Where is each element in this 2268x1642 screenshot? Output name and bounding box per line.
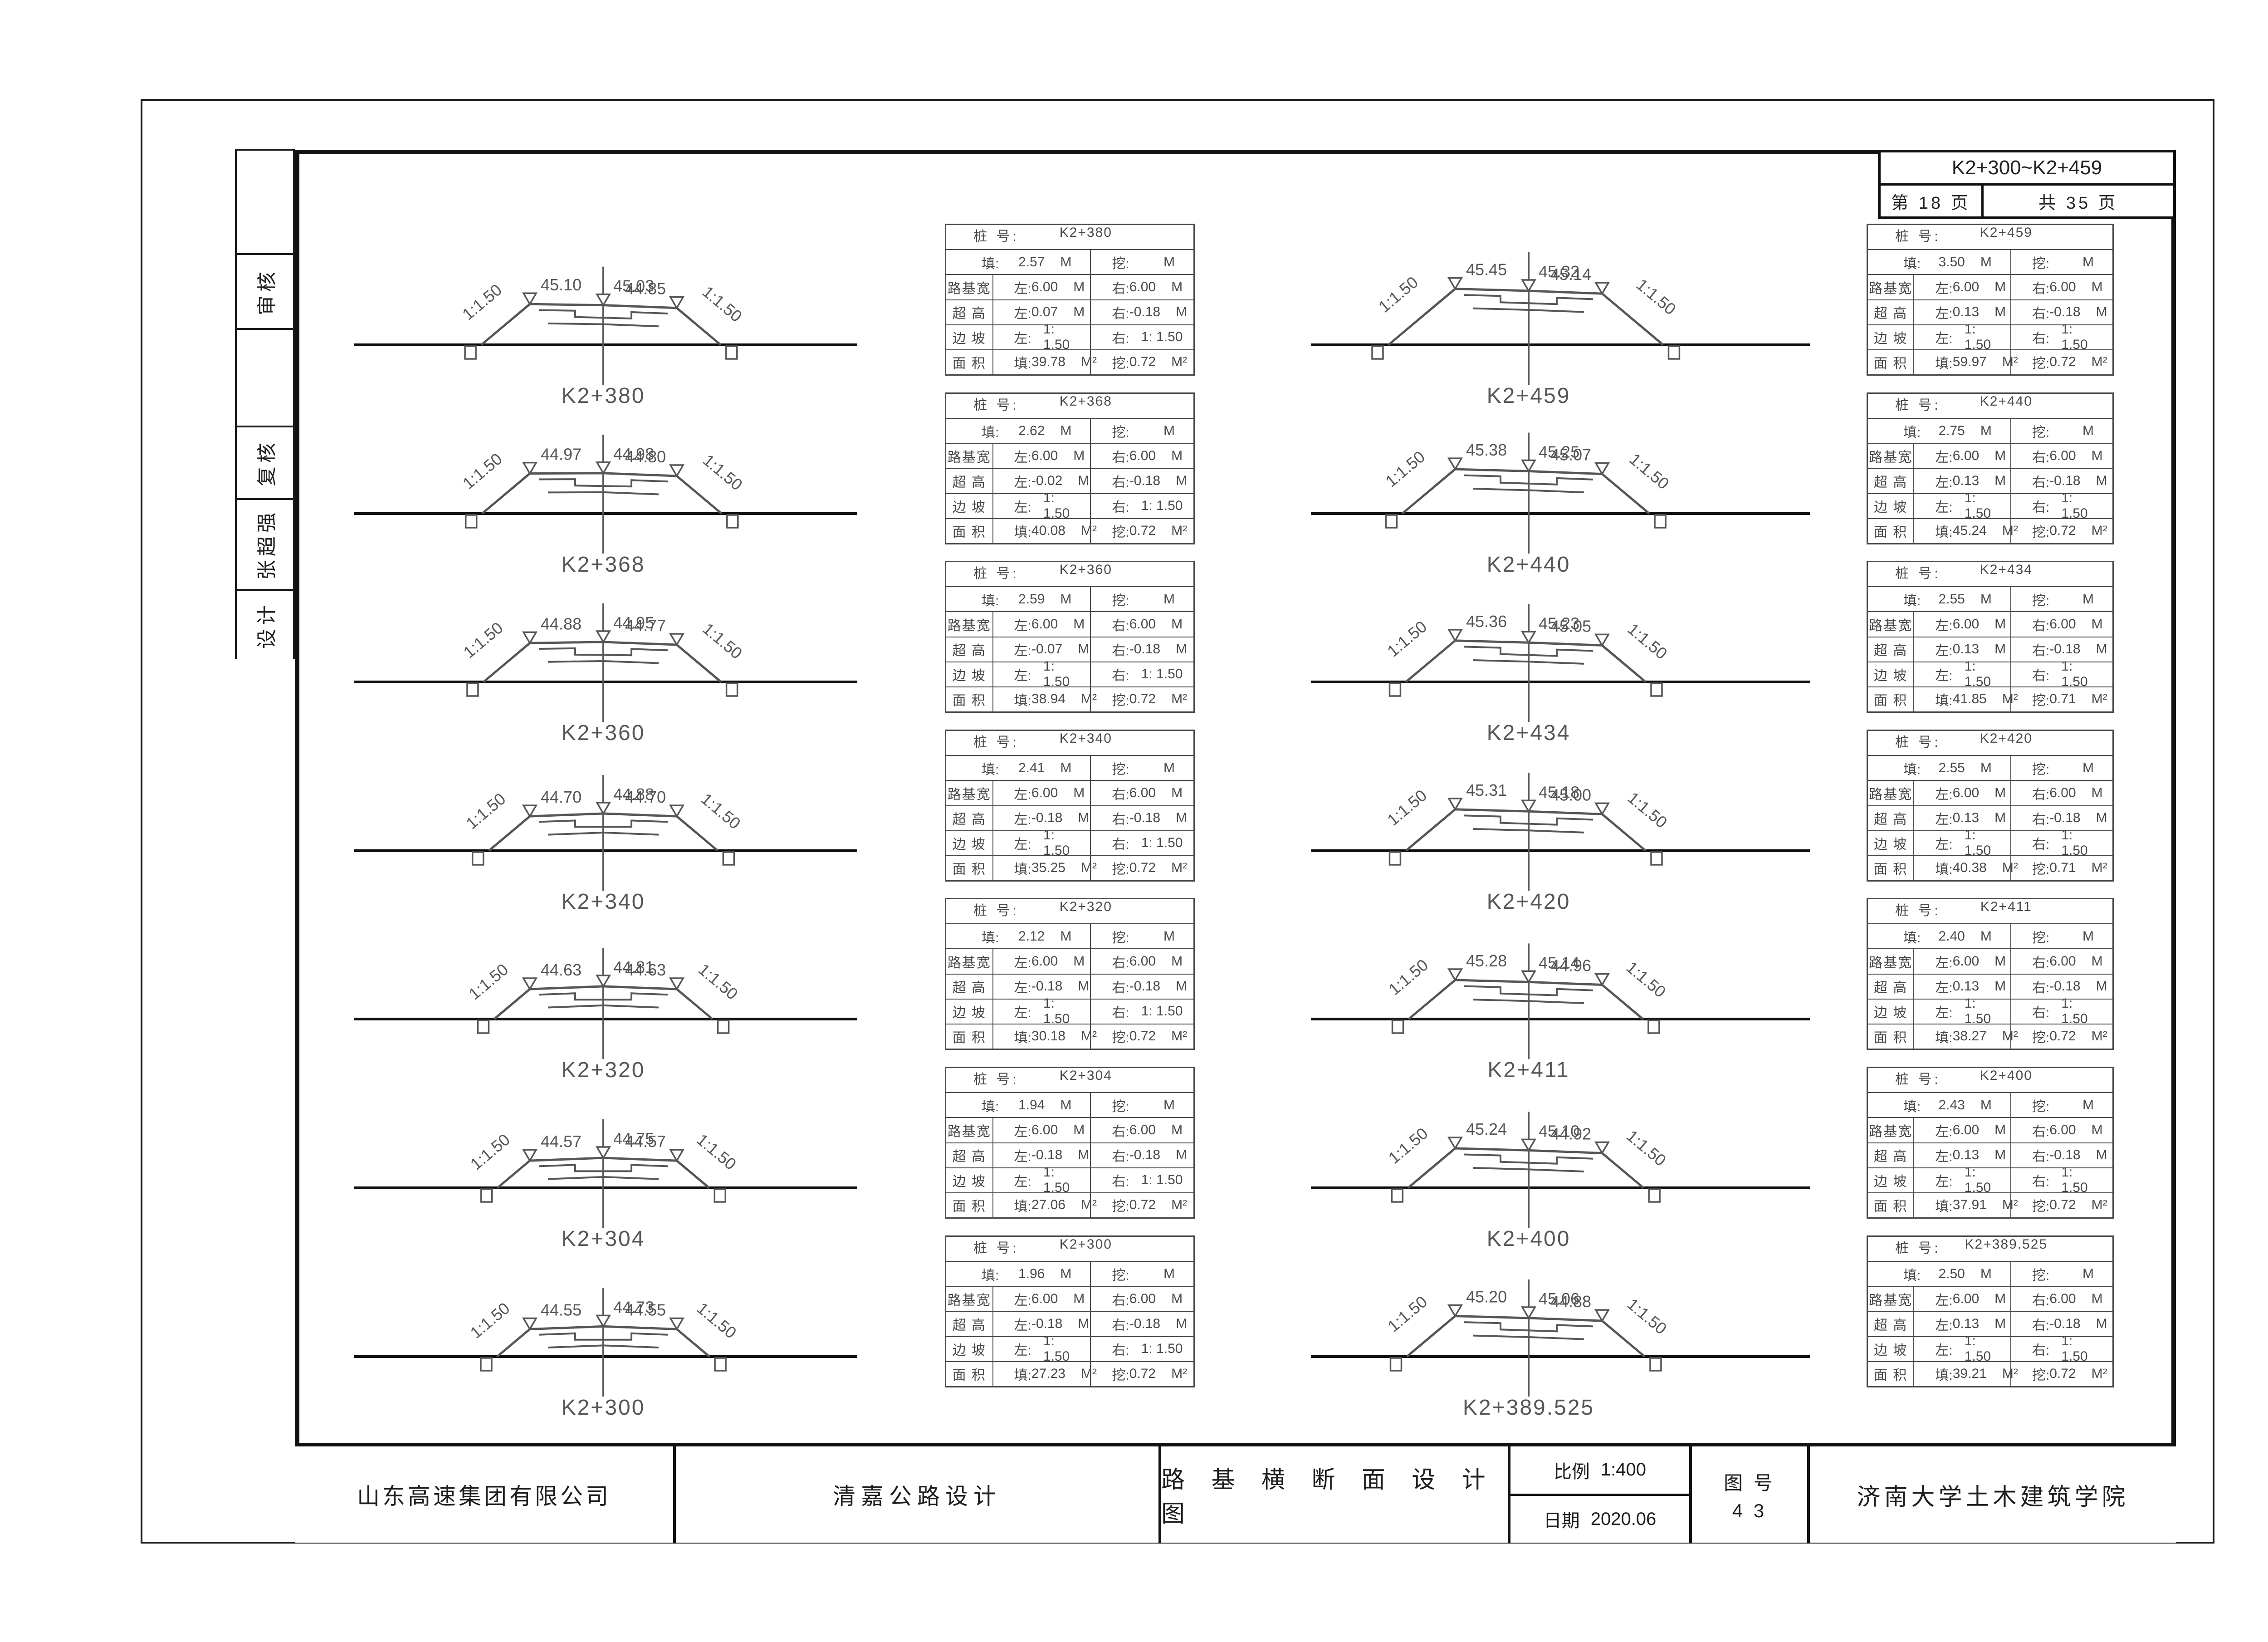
fill-label: 填:: [1903, 252, 1921, 272]
left-toe-marker-icon: [1392, 1189, 1403, 1202]
right-slope-ratio-label: 1:1.50: [1623, 1126, 1670, 1170]
left-label: 左:: [1935, 1170, 1952, 1190]
row-superelevation-right-value: -0.18: [1129, 473, 1160, 489]
left-label: 填:: [1935, 1364, 1952, 1384]
row-roadbed-width-right-value: 6.00: [2049, 279, 2076, 295]
right-label: 右:: [1112, 446, 1129, 466]
row-roadbed-width-left-cell: 左:6.00M: [993, 1287, 1091, 1311]
row-area: 面 积填:39.21M²挖:0.72M²: [1868, 1361, 2112, 1386]
right-label: 挖:: [2032, 1195, 2049, 1215]
row-superelevation-right-value: -0.18: [2049, 1316, 2080, 1332]
station-value: K2+440: [1941, 394, 2072, 418]
row-superelevation-header: 超 高: [946, 300, 993, 324]
row-side-slope: 边 坡左:1: 1.50右:1: 1.50: [946, 662, 1193, 686]
elevation-marker-icon: [1522, 280, 1535, 291]
row-superelevation-right-value: -0.18: [2049, 473, 2080, 489]
left-label: 左:: [1935, 496, 1952, 516]
row-superelevation-left-value: 0.13: [1953, 979, 1979, 994]
cut-height-cell: 挖:M: [2011, 1093, 2112, 1117]
elevation-marker-icon: [1522, 1139, 1535, 1150]
unit: M: [1171, 954, 1191, 969]
unit: M: [1176, 979, 1196, 994]
left-slope-line: [1406, 809, 1455, 851]
right-label: 右:: [1112, 1339, 1129, 1359]
left-label: 填:: [1014, 1364, 1031, 1384]
left-label: 左:: [1935, 639, 1952, 659]
row-superelevation-header: 超 高: [946, 469, 993, 493]
station-value: K2+420: [1941, 731, 2072, 755]
row-superelevation-right-cell: 右:-0.18M: [1091, 806, 1193, 830]
row-side-slope-header-label: 边 坡: [953, 327, 986, 347]
elevation-marker-icon: [1596, 634, 1608, 645]
left-label: 左:: [1935, 833, 1952, 853]
row-superelevation-left-cell: 左:0.13M: [1914, 300, 2011, 324]
cut-height-cell: 挖:M: [1091, 419, 1193, 443]
left-label: 左:: [1935, 1120, 1952, 1140]
right-label: 右:: [1112, 639, 1129, 659]
row-roadbed-width-right-value: 6.00: [1129, 1122, 1156, 1138]
row-side-slope-left-cell: 左:1: 1.50: [1914, 494, 2011, 518]
row-roadbed-width-header-label: 路基宽: [1869, 951, 1912, 971]
station-caption: K2+300: [562, 1396, 645, 1420]
right-label: 右:: [2032, 1314, 2049, 1334]
row-roadbed-width-header: 路基宽: [1868, 1118, 1914, 1142]
row-roadbed-width: 路基宽左:6.00M右:6.00M: [946, 611, 1193, 636]
left-label: 左:: [1935, 1339, 1952, 1359]
margin-label-sheji: 设计: [250, 602, 279, 649]
unit: M: [1073, 448, 1093, 464]
cross-section-table-K2+389.525: 桩 号:K2+389.525填:2.50M挖:M路基宽左:6.00M右:6.00…: [1867, 1235, 2114, 1387]
row-roadbed-width-left-cell: 左:6.00M: [1914, 612, 2011, 636]
right-label: 挖:: [1112, 1364, 1129, 1384]
right-toe-marker-icon: [1651, 852, 1662, 865]
right-label: 右:: [2032, 1339, 2049, 1359]
station-value: K2+389.525: [1941, 1237, 2072, 1261]
row-area-right-cell: 挖:0.72M²: [1091, 1024, 1193, 1049]
unit: M²: [1171, 354, 1191, 370]
row-superelevation: 超 高左:-0.18M右:-0.18M: [946, 974, 1193, 999]
row-station: 桩 号:K2+420: [1868, 731, 2112, 755]
row-roadbed-width-left-value: 6.00: [1031, 448, 1058, 464]
row-roadbed-width-left-cell: 左:6.00M: [993, 1118, 1091, 1142]
row-side-slope-left-cell: 左:1: 1.50: [1914, 1168, 2011, 1192]
row-superelevation: 超 高左:0.13M右:-0.18M: [1868, 299, 2112, 324]
row-area-right-value: 0.72: [2049, 1029, 2076, 1044]
row-superelevation-left-value: 0.13: [1953, 304, 1979, 320]
elevation-left: 44.63: [541, 961, 582, 979]
row-area-left-cell: 填:39.21M²: [1914, 1362, 2011, 1386]
right-toe-marker-icon: [723, 852, 734, 865]
row-area-header-label: 面 积: [1874, 689, 1907, 709]
cut-label: 挖:: [2032, 758, 2049, 778]
station-label: 桩 号:: [1895, 562, 1941, 586]
station-caption: K2+389.525: [1463, 1396, 1594, 1420]
row-area-right-cell: 挖:0.72M²: [1091, 350, 1193, 374]
elevation-marker-icon: [1449, 799, 1461, 809]
right-label: 右:: [1112, 951, 1129, 971]
row-area-right-cell: 挖:0.72M²: [1091, 519, 1193, 543]
right-slope-line: [1602, 645, 1646, 682]
fill-height-value: 1.96: [1018, 1266, 1045, 1282]
cut-height-cell: 挖:M: [2011, 587, 2112, 611]
row-roadbed-width-right-value: 6.00: [1129, 617, 1156, 632]
row-superelevation-header-label: 超 高: [1874, 471, 1907, 491]
row-fill-cut: 填:2.12M挖:M: [946, 923, 1193, 948]
left-label: 左:: [1014, 302, 1031, 322]
left-slope-line: [489, 816, 530, 851]
row-roadbed-width-left-cell: 左:6.00M: [993, 275, 1091, 299]
right-label: 右:: [2032, 614, 2049, 634]
elevation-marker-icon: [1596, 1310, 1608, 1321]
cut-height-cell: 挖:M: [2011, 756, 2112, 780]
row-roadbed-width-header: 路基宽: [1868, 275, 1914, 299]
right-label: 右:: [1112, 302, 1129, 322]
right-label: 右:: [2032, 277, 2049, 297]
unit: M: [1176, 642, 1196, 657]
unit: M²: [2092, 691, 2112, 707]
row-side-slope-left-value: 1: 1.50: [1043, 490, 1080, 521]
left-label: 左:: [1014, 951, 1031, 971]
left-label: 左:: [1935, 614, 1952, 634]
row-superelevation-left-value: -0.07: [1031, 642, 1062, 657]
right-label: 右:: [2032, 808, 2049, 828]
row-area-header-label: 面 积: [1874, 1364, 1907, 1384]
row-side-slope-left-value: 1: 1.50: [1043, 996, 1080, 1027]
row-side-slope-left-cell: 左:1: 1.50: [1914, 1337, 2011, 1361]
unit-m: M: [1060, 760, 1080, 776]
row-area: 面 积填:40.38M²挖:0.71M²: [1868, 855, 2112, 880]
left-label: 左:: [1014, 664, 1031, 684]
right-label: 右:: [2032, 951, 2049, 971]
elevation-right: 44.77: [625, 616, 666, 635]
left-slope-line: [497, 1329, 530, 1357]
row-side-slope-right-value: 1: 1.50: [1141, 498, 1183, 514]
row-side-slope-right-value: 1: 1.50: [2061, 322, 2102, 353]
unit: M: [1171, 448, 1191, 464]
row-superelevation-header: 超 高: [946, 975, 993, 999]
cross-section-diagram-K2+300: 44.5544.7344.551:1.501:1.50K2+300: [340, 1207, 866, 1425]
row-side-slope-right-cell: 右:1: 1.50: [2011, 831, 2112, 855]
row-superelevation-header-label: 超 高: [953, 808, 986, 828]
elevation-marker-icon: [1449, 278, 1461, 289]
right-label: 右:: [2032, 446, 2049, 466]
right-label: 右:: [1112, 976, 1129, 996]
row-area-left-value: 39.21: [1953, 1366, 1987, 1382]
row-area-header: 面 积: [946, 687, 993, 711]
row-area: 面 积填:38.94M²挖:0.72M²: [946, 686, 1193, 711]
row-fill-cut: 填:3.50M挖:M: [1868, 249, 2112, 274]
page-number: 第 18 页: [1881, 186, 1984, 216]
row-side-slope-right-cell: 右:1: 1.50: [2011, 1000, 2112, 1024]
left-label: 填:: [1935, 858, 1952, 878]
row-superelevation-left-value: -0.18: [1031, 1147, 1062, 1163]
right-label: 右:: [1112, 277, 1129, 297]
right-slope-line: [677, 308, 721, 345]
row-side-slope-header: 边 坡: [1868, 325, 1914, 349]
fill-height-cell: 填:2.62M: [946, 419, 1091, 443]
row-superelevation-right-value: -0.18: [1129, 304, 1160, 320]
elevation-left: 45.45: [1466, 260, 1507, 279]
row-area-header: 面 积: [1868, 519, 1914, 543]
row-area-right-value: 0.71: [2049, 860, 2076, 876]
right-label: 右:: [2032, 1001, 2049, 1021]
row-area-header: 面 积: [1868, 1193, 1914, 1217]
row-station: 桩 号:K2+400: [1868, 1068, 2112, 1092]
fill-height-value: 2.50: [1938, 1266, 1965, 1282]
elevation-marker-icon: [1596, 463, 1608, 474]
row-area: 面 积填:45.24M²挖:0.72M²: [1868, 518, 2112, 543]
left-label: 左:: [1014, 496, 1031, 516]
unit-m: M: [1163, 1098, 1183, 1113]
row-area-right-value: 0.72: [1129, 1366, 1156, 1382]
unit: M: [2092, 279, 2112, 295]
right-label: 挖:: [2032, 352, 2049, 372]
right-toe-marker-icon: [1649, 1189, 1660, 1202]
fill-height-cell: 填:2.43M: [1868, 1093, 2011, 1117]
row-area-left-cell: 填:38.94M²: [993, 687, 1091, 711]
row-side-slope-right-cell: 右:1: 1.50: [2011, 1337, 2112, 1361]
elevation-marker-icon: [1449, 1137, 1461, 1148]
row-area-right-cell: 挖:0.71M²: [2011, 856, 2112, 880]
row-area-right-value: 0.72: [1129, 691, 1156, 707]
left-label: 填:: [1935, 1026, 1952, 1046]
elevation-marker-icon: [1449, 458, 1461, 469]
row-superelevation-left-value: -0.18: [1031, 979, 1062, 994]
row-roadbed-width-left-value: 6.00: [1031, 617, 1058, 632]
row-area-header-label: 面 积: [1874, 521, 1907, 541]
scale-date-cell: 比例 1:400 日期 2020.06: [1510, 1446, 1692, 1543]
cross-section-table-K2+340: 桩 号:K2+340填:2.41M挖:M路基宽左:6.00M右:6.00M超 高…: [945, 730, 1195, 882]
row-roadbed-width: 路基宽左:6.00M右:6.00M: [1868, 948, 2112, 973]
row-superelevation-right-cell: 右:-0.18M: [2011, 300, 2112, 324]
row-superelevation-header: 超 高: [946, 1143, 993, 1167]
right-label: 右:: [1112, 1001, 1129, 1021]
left-label: 左:: [1014, 783, 1031, 803]
row-superelevation-header-label: 超 高: [1874, 302, 1907, 322]
right-toe-marker-icon: [714, 1189, 725, 1202]
row-fill-cut: 填:1.96M挖:M: [946, 1261, 1193, 1286]
unit-m: M: [2082, 592, 2102, 607]
row-roadbed-width-header-label: 路基宽: [1869, 1289, 1912, 1309]
right-label: 右:: [1112, 1314, 1129, 1334]
row-side-slope-right-value: 1: 1.50: [1141, 835, 1183, 851]
row-side-slope: 边 坡左:1: 1.50右:1: 1.50: [1868, 662, 2112, 686]
elevation-left: 45.24: [1466, 1120, 1507, 1138]
row-area-left-cell: 填:37.91M²: [1914, 1193, 2011, 1217]
row-area-right-value: 0.72: [2049, 1197, 2076, 1213]
row-side-slope-header: 边 坡: [1868, 831, 1914, 855]
station-value: K2+340: [1019, 731, 1153, 755]
elevation-right: 45.05: [1550, 617, 1591, 635]
left-slope-ratio-label: 1:1.50: [459, 618, 506, 662]
row-side-slope-left-cell: 左:1: 1.50: [993, 831, 1091, 855]
row-superelevation-left-cell: 左:0.13M: [1914, 637, 2011, 662]
row-side-slope-header-label: 边 坡: [953, 833, 986, 853]
row-area-left-value: 40.38: [1953, 860, 1987, 876]
row-roadbed-width-right-value: 6.00: [2049, 1122, 2076, 1138]
row-superelevation-header-label: 超 高: [1874, 976, 1907, 996]
left-label: 左:: [1935, 976, 1952, 996]
fill-label: 填:: [1903, 1264, 1921, 1284]
row-superelevation-left-value: -0.18: [1031, 1316, 1062, 1332]
row-side-slope-header: 边 坡: [946, 1000, 993, 1024]
station-label: 桩 号:: [973, 899, 1019, 923]
elevation-marker-icon: [597, 975, 610, 986]
right-label: 挖:: [1112, 1195, 1129, 1215]
unit-m: M: [1980, 255, 2000, 270]
row-superelevation-left-cell: 左:-0.18M: [993, 975, 1091, 999]
unit-m: M: [1060, 423, 1080, 439]
row-roadbed-width-right-value: 6.00: [2049, 954, 2076, 969]
row-side-slope-header-label: 边 坡: [1874, 1001, 1907, 1021]
right-label: 右:: [2032, 639, 2049, 659]
row-area-right-value: 0.72: [1129, 1029, 1156, 1044]
elevation-marker-icon: [1596, 283, 1608, 294]
right-label: 右:: [2032, 327, 2049, 347]
row-side-slope-right-cell: 右:1: 1.50: [2011, 325, 2112, 349]
row-side-slope: 边 坡左:1: 1.50右:1: 1.50: [1868, 1167, 2112, 1192]
row-area-header: 面 积: [1868, 856, 1914, 880]
row-area-left-value: 35.25: [1031, 860, 1066, 876]
elevation-marker-icon: [1596, 974, 1608, 985]
fill-height-value: 3.50: [1938, 255, 1965, 270]
row-area-header: 面 积: [946, 519, 993, 543]
row-superelevation-header-label: 超 高: [1874, 1145, 1907, 1165]
row-roadbed-width-right-value: 6.00: [2049, 617, 2076, 632]
row-side-slope-right-value: 1: 1.50: [2061, 828, 2102, 858]
row-area-left-cell: 填:40.38M²: [1914, 856, 2011, 880]
fill-label: 填:: [1903, 421, 1921, 441]
figure-number-label: 图 号: [1724, 1468, 1775, 1495]
unit-m: M: [1980, 760, 2000, 776]
row-roadbed-width-header: 路基宽: [946, 949, 993, 973]
left-label: 左:: [1014, 277, 1031, 297]
unit: M: [2092, 448, 2112, 464]
unit: M²: [1171, 1366, 1191, 1382]
station-label: 桩 号:: [1895, 225, 1941, 249]
project-name: 清嘉公路设计: [676, 1446, 1161, 1543]
row-roadbed-width-right-cell: 右:6.00M: [1091, 1118, 1193, 1142]
row-area-left-cell: 填:41.85M²: [1914, 687, 2011, 711]
unit-m: M: [1163, 1266, 1183, 1282]
row-side-slope-header-label: 边 坡: [953, 1170, 986, 1190]
cross-section-table-K2+380: 桩 号:K2+380填:2.57M挖:M路基宽左:6.00M右:6.00M超 高…: [945, 224, 1195, 376]
row-roadbed-width-left-value: 6.00: [1031, 1122, 1058, 1138]
right-slope-line: [677, 989, 713, 1019]
row-superelevation-right-value: -0.18: [2049, 810, 2080, 826]
station-value: K2+400: [1941, 1068, 2072, 1092]
cut-height-cell: 挖:M: [2011, 250, 2112, 274]
right-toe-marker-icon: [1648, 1020, 1659, 1033]
row-superelevation: 超 高左:0.13M右:-0.18M: [1868, 1142, 2112, 1167]
row-roadbed-width-left-cell: 左:6.00M: [993, 949, 1091, 973]
figure-number-value: 4 3: [1732, 1500, 1767, 1522]
right-toe-marker-icon: [718, 1020, 729, 1033]
left-slope-ratio-label: 1:1.50: [1385, 1124, 1432, 1167]
fill-label: 填:: [1903, 758, 1921, 778]
cross-section-table-K2+411: 桩 号:K2+411填:2.40M挖:M路基宽左:6.00M右:6.00M超 高…: [1867, 898, 2114, 1050]
row-superelevation-header-label: 超 高: [953, 976, 986, 996]
row-side-slope: 边 坡左:1: 1.50右:1: 1.50: [946, 1336, 1193, 1361]
scale-label: 比例: [1554, 1457, 1590, 1483]
row-fill-cut: 填:2.50M挖:M: [1868, 1261, 2112, 1286]
row-roadbed-width-right-value: 6.00: [1129, 954, 1156, 969]
row-area-right-cell: 挖:0.72M²: [2011, 1193, 2112, 1217]
station-range-label: K2+300~K2+459: [1881, 152, 2173, 186]
unit: M²: [1171, 1029, 1191, 1044]
left-label: 左:: [1014, 833, 1031, 853]
fill-height-cell: 填:2.55M: [1868, 756, 2011, 780]
row-area-left-value: 38.94: [1031, 691, 1066, 707]
row-side-slope: 边 坡左:1: 1.50右:1: 1.50: [946, 324, 1193, 349]
left-toe-marker-icon: [466, 515, 477, 528]
fill-label: 填:: [1903, 589, 1921, 609]
cut-height-cell: 挖:M: [1091, 924, 1193, 948]
row-side-slope-right-value: 1: 1.50: [2061, 490, 2102, 521]
row-superelevation-left-value: 0.13: [1953, 473, 1979, 489]
row-side-slope-header-label: 边 坡: [953, 1001, 986, 1021]
left-label: 左:: [1935, 327, 1952, 347]
row-side-slope-left-cell: 左:1: 1.50: [993, 1000, 1091, 1024]
row-area-header: 面 积: [946, 1362, 993, 1386]
row-station: 桩 号:K2+440: [1868, 394, 2112, 418]
cross-section-table-K2+420: 桩 号:K2+420填:2.55M挖:M路基宽左:6.00M右:6.00M超 高…: [1867, 730, 2114, 882]
station-value: K2+320: [1019, 899, 1153, 923]
row-superelevation: 超 高左:0.13M右:-0.18M: [1868, 805, 2112, 830]
row-roadbed-width-right-value: 6.00: [1129, 279, 1156, 295]
unit: M: [1171, 1122, 1191, 1138]
row-roadbed-width-right-cell: 右:6.00M: [1091, 949, 1193, 973]
right-label: 右:: [1112, 1170, 1129, 1190]
left-slope-line: [1406, 641, 1455, 682]
row-side-slope: 边 坡左:1: 1.50右:1: 1.50: [1868, 324, 2112, 349]
unit-m: M: [1060, 592, 1080, 607]
row-side-slope-right-value: 1: 1.50: [1141, 329, 1183, 345]
figure-number-cell: 图 号 4 3: [1692, 1446, 1810, 1543]
row-area-header-label: 面 积: [1874, 1026, 1907, 1046]
row-side-slope-left-value: 1: 1.50: [1965, 322, 2000, 353]
row-side-slope-header: 边 坡: [946, 494, 993, 518]
row-station: 桩 号:K2+459: [1868, 225, 2112, 249]
row-roadbed-width-header: 路基宽: [946, 781, 993, 805]
row-station: 桩 号:K2+434: [1868, 562, 2112, 586]
elevation-marker-icon: [1449, 1305, 1461, 1316]
row-side-slope-header-label: 边 坡: [1874, 496, 1907, 516]
row-fill-cut: 填:2.62M挖:M: [946, 418, 1193, 443]
row-side-slope-left-value: 1: 1.50: [1965, 490, 2000, 521]
left-label: 填:: [1014, 352, 1031, 372]
row-area: 面 积填:39.78M²挖:0.72M²: [946, 349, 1193, 374]
row-superelevation-right-cell: 右:-0.18M: [2011, 1143, 2112, 1167]
unit-m: M: [1060, 929, 1080, 944]
left-slope-ratio-label: 1:1.50: [1383, 786, 1430, 829]
row-side-slope-header: 边 坡: [946, 831, 993, 855]
row-side-slope-right-value: 1: 1.50: [1141, 667, 1183, 682]
fill-height-value: 2.62: [1018, 423, 1045, 439]
row-area-right-value: 0.72: [1129, 354, 1156, 370]
elevation-marker-icon: [1522, 632, 1535, 642]
elevation-left: 44.97: [541, 445, 582, 464]
cross-section-table-K2+440: 桩 号:K2+440填:2.75M挖:M路基宽左:6.00M右:6.00M超 高…: [1867, 392, 2114, 544]
right-slope-ratio-label: 1:1.50: [1626, 450, 1673, 493]
row-superelevation-right-value: -0.18: [2049, 979, 2080, 994]
elevation-marker-icon: [1596, 1142, 1608, 1153]
row-fill-cut: 填:2.55M挖:M: [1868, 755, 2112, 780]
unit: M: [1073, 617, 1093, 632]
elevation-marker-icon: [670, 805, 683, 816]
row-side-slope-right-value: 1: 1.50: [2061, 659, 2102, 690]
unit: M: [2096, 979, 2116, 994]
